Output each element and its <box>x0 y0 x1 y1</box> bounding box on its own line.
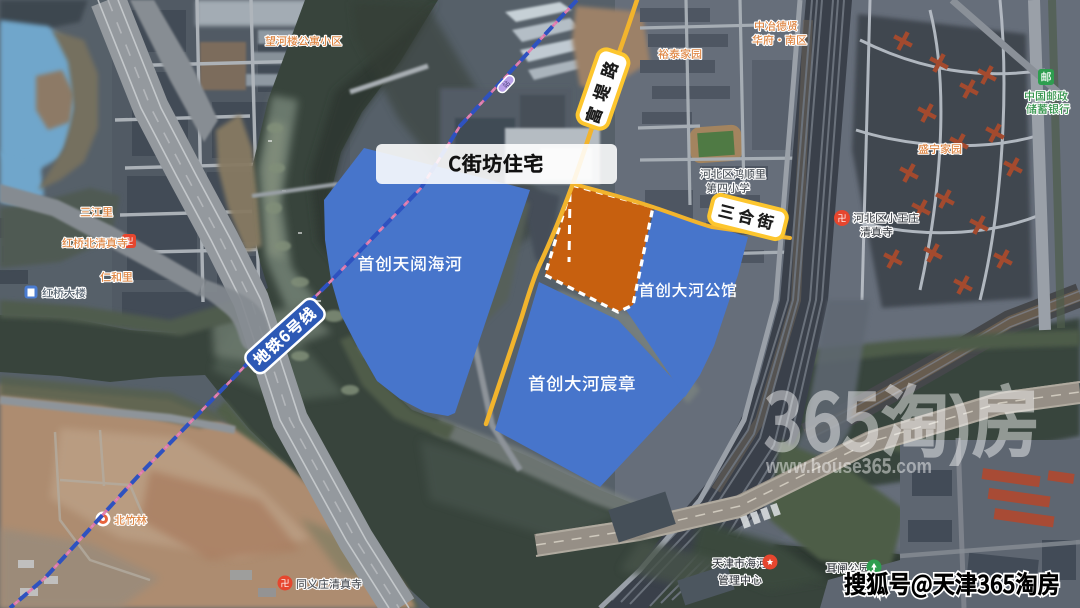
svg-text:卍: 卍 <box>837 212 846 225</box>
svg-text:红桥北清真寺: 红桥北清真寺 <box>62 235 128 251</box>
svg-text:邮: 邮 <box>1041 69 1052 85</box>
svg-text:望河楼公寓小区: 望河楼公寓小区 <box>265 33 342 49</box>
svg-text:卍: 卍 <box>280 577 289 590</box>
svg-text:首创大河宸章: 首创大河宸章 <box>528 371 636 396</box>
svg-text:C街坊住宅: C街坊住宅 <box>448 148 543 177</box>
svg-text:清真寺: 清真寺 <box>860 224 893 240</box>
svg-text:仁和里: 仁和里 <box>100 269 133 285</box>
svg-text:管理中心: 管理中心 <box>718 572 762 588</box>
svg-text:华府·南区: 华府·南区 <box>752 32 807 48</box>
svg-text:天津市海河: 天津市海河 <box>712 555 767 571</box>
svg-text:裕泰家园: 裕泰家园 <box>658 46 702 62</box>
svg-text:www.house365.com: www.house365.com <box>765 450 932 479</box>
svg-text:同义庄清真寺: 同义庄清真寺 <box>296 576 362 592</box>
svg-text:第四小学: 第四小学 <box>706 180 750 196</box>
svg-text:三江里: 三江里 <box>80 204 113 220</box>
svg-text:首创天阅海河: 首创天阅海河 <box>358 250 463 275</box>
svg-text:红桥大楼: 红桥大楼 <box>42 285 86 301</box>
svg-text:盛宁家园: 盛宁家园 <box>918 141 962 157</box>
svg-text:首创大河公馆: 首创大河公馆 <box>638 277 737 301</box>
svg-text:储蓄银行: 储蓄银行 <box>1026 101 1070 117</box>
svg-text:搜狐号@天津365淘房: 搜狐号@天津365淘房 <box>844 566 1060 601</box>
svg-text:北竹林: 北竹林 <box>114 512 147 528</box>
